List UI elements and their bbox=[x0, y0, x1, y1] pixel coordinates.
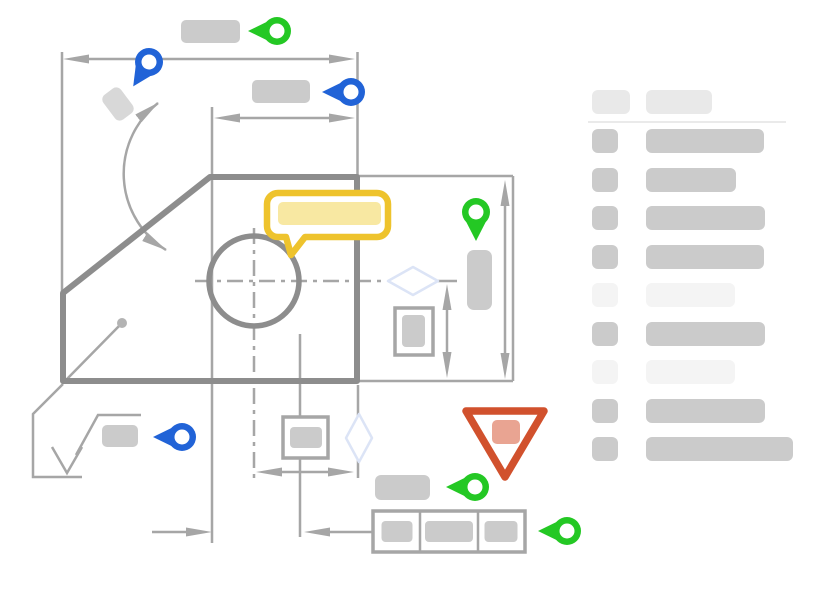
dim-text-upper bbox=[252, 80, 310, 103]
legend-row-badge bbox=[592, 168, 618, 192]
gdt-symbol-lower bbox=[290, 427, 322, 448]
pin-surface-finish[interactable] bbox=[153, 423, 196, 451]
legend-rows bbox=[588, 129, 798, 461]
legend-row[interactable] bbox=[588, 129, 798, 153]
comment-callout[interactable] bbox=[267, 193, 388, 255]
legend-row-bar bbox=[646, 360, 735, 384]
surface-finish-text bbox=[102, 425, 138, 447]
legend-row-badge bbox=[592, 245, 618, 269]
legend-row-badge bbox=[592, 360, 618, 384]
dim-text-angle bbox=[100, 85, 136, 123]
pin-feature-control-frame[interactable] bbox=[538, 517, 581, 545]
legend-row-badge bbox=[592, 399, 618, 423]
list-divider bbox=[588, 121, 786, 123]
warning-text-placeholder bbox=[492, 420, 520, 444]
legend-row-bar bbox=[646, 283, 735, 307]
legend-row-bar bbox=[646, 399, 765, 423]
legend-row[interactable] bbox=[588, 245, 798, 269]
datum-text bbox=[375, 475, 430, 500]
legend-row[interactable] bbox=[588, 360, 798, 384]
dim-text-top bbox=[181, 20, 240, 43]
dimension-arrowheads bbox=[63, 55, 510, 537]
legend-row-bar bbox=[646, 322, 765, 346]
legend-row-bar bbox=[646, 206, 765, 230]
hole-circle bbox=[209, 236, 299, 326]
pin-height-dim[interactable] bbox=[462, 198, 490, 241]
fcf-cell-3 bbox=[485, 521, 518, 542]
legend-row[interactable] bbox=[588, 322, 798, 346]
pin-upper-width-label[interactable] bbox=[322, 78, 365, 106]
annotation-list-header[interactable] bbox=[592, 90, 798, 114]
dim-text-height bbox=[467, 250, 492, 310]
legend-row[interactable] bbox=[588, 168, 798, 192]
legend-row-badge bbox=[592, 283, 618, 307]
legend-row-bar bbox=[646, 168, 736, 192]
leader-dot bbox=[117, 318, 127, 328]
warning-badge[interactable] bbox=[466, 411, 544, 477]
diamond-symbol-bottom bbox=[346, 414, 372, 462]
comment-text-placeholder bbox=[278, 202, 381, 225]
pin-overall-width-dim[interactable] bbox=[121, 43, 168, 94]
legend-row[interactable] bbox=[588, 283, 798, 307]
pin-top-width-label[interactable] bbox=[248, 17, 291, 45]
annotation-list-panel bbox=[588, 90, 798, 461]
fcf-cell-2 bbox=[425, 521, 473, 542]
legend-row-badge bbox=[592, 437, 618, 461]
legend-row[interactable] bbox=[588, 206, 798, 230]
fcf-cell-1 bbox=[382, 521, 413, 542]
legend-row-badge bbox=[592, 322, 618, 346]
legend-row[interactable] bbox=[588, 399, 798, 423]
gdt-symbol-upper bbox=[402, 315, 425, 347]
legend-row[interactable] bbox=[588, 437, 798, 461]
header-badge-placeholder bbox=[592, 90, 630, 114]
header-title-placeholder bbox=[646, 90, 712, 114]
pin-datum-label[interactable] bbox=[446, 473, 489, 501]
legend-row-bar bbox=[646, 245, 764, 269]
diamond-symbol-right bbox=[388, 267, 438, 295]
legend-row-bar bbox=[646, 437, 793, 461]
cad-review-illustration bbox=[0, 0, 827, 591]
legend-row-badge bbox=[592, 206, 618, 230]
legend-row-bar bbox=[646, 129, 764, 153]
legend-row-badge bbox=[592, 129, 618, 153]
